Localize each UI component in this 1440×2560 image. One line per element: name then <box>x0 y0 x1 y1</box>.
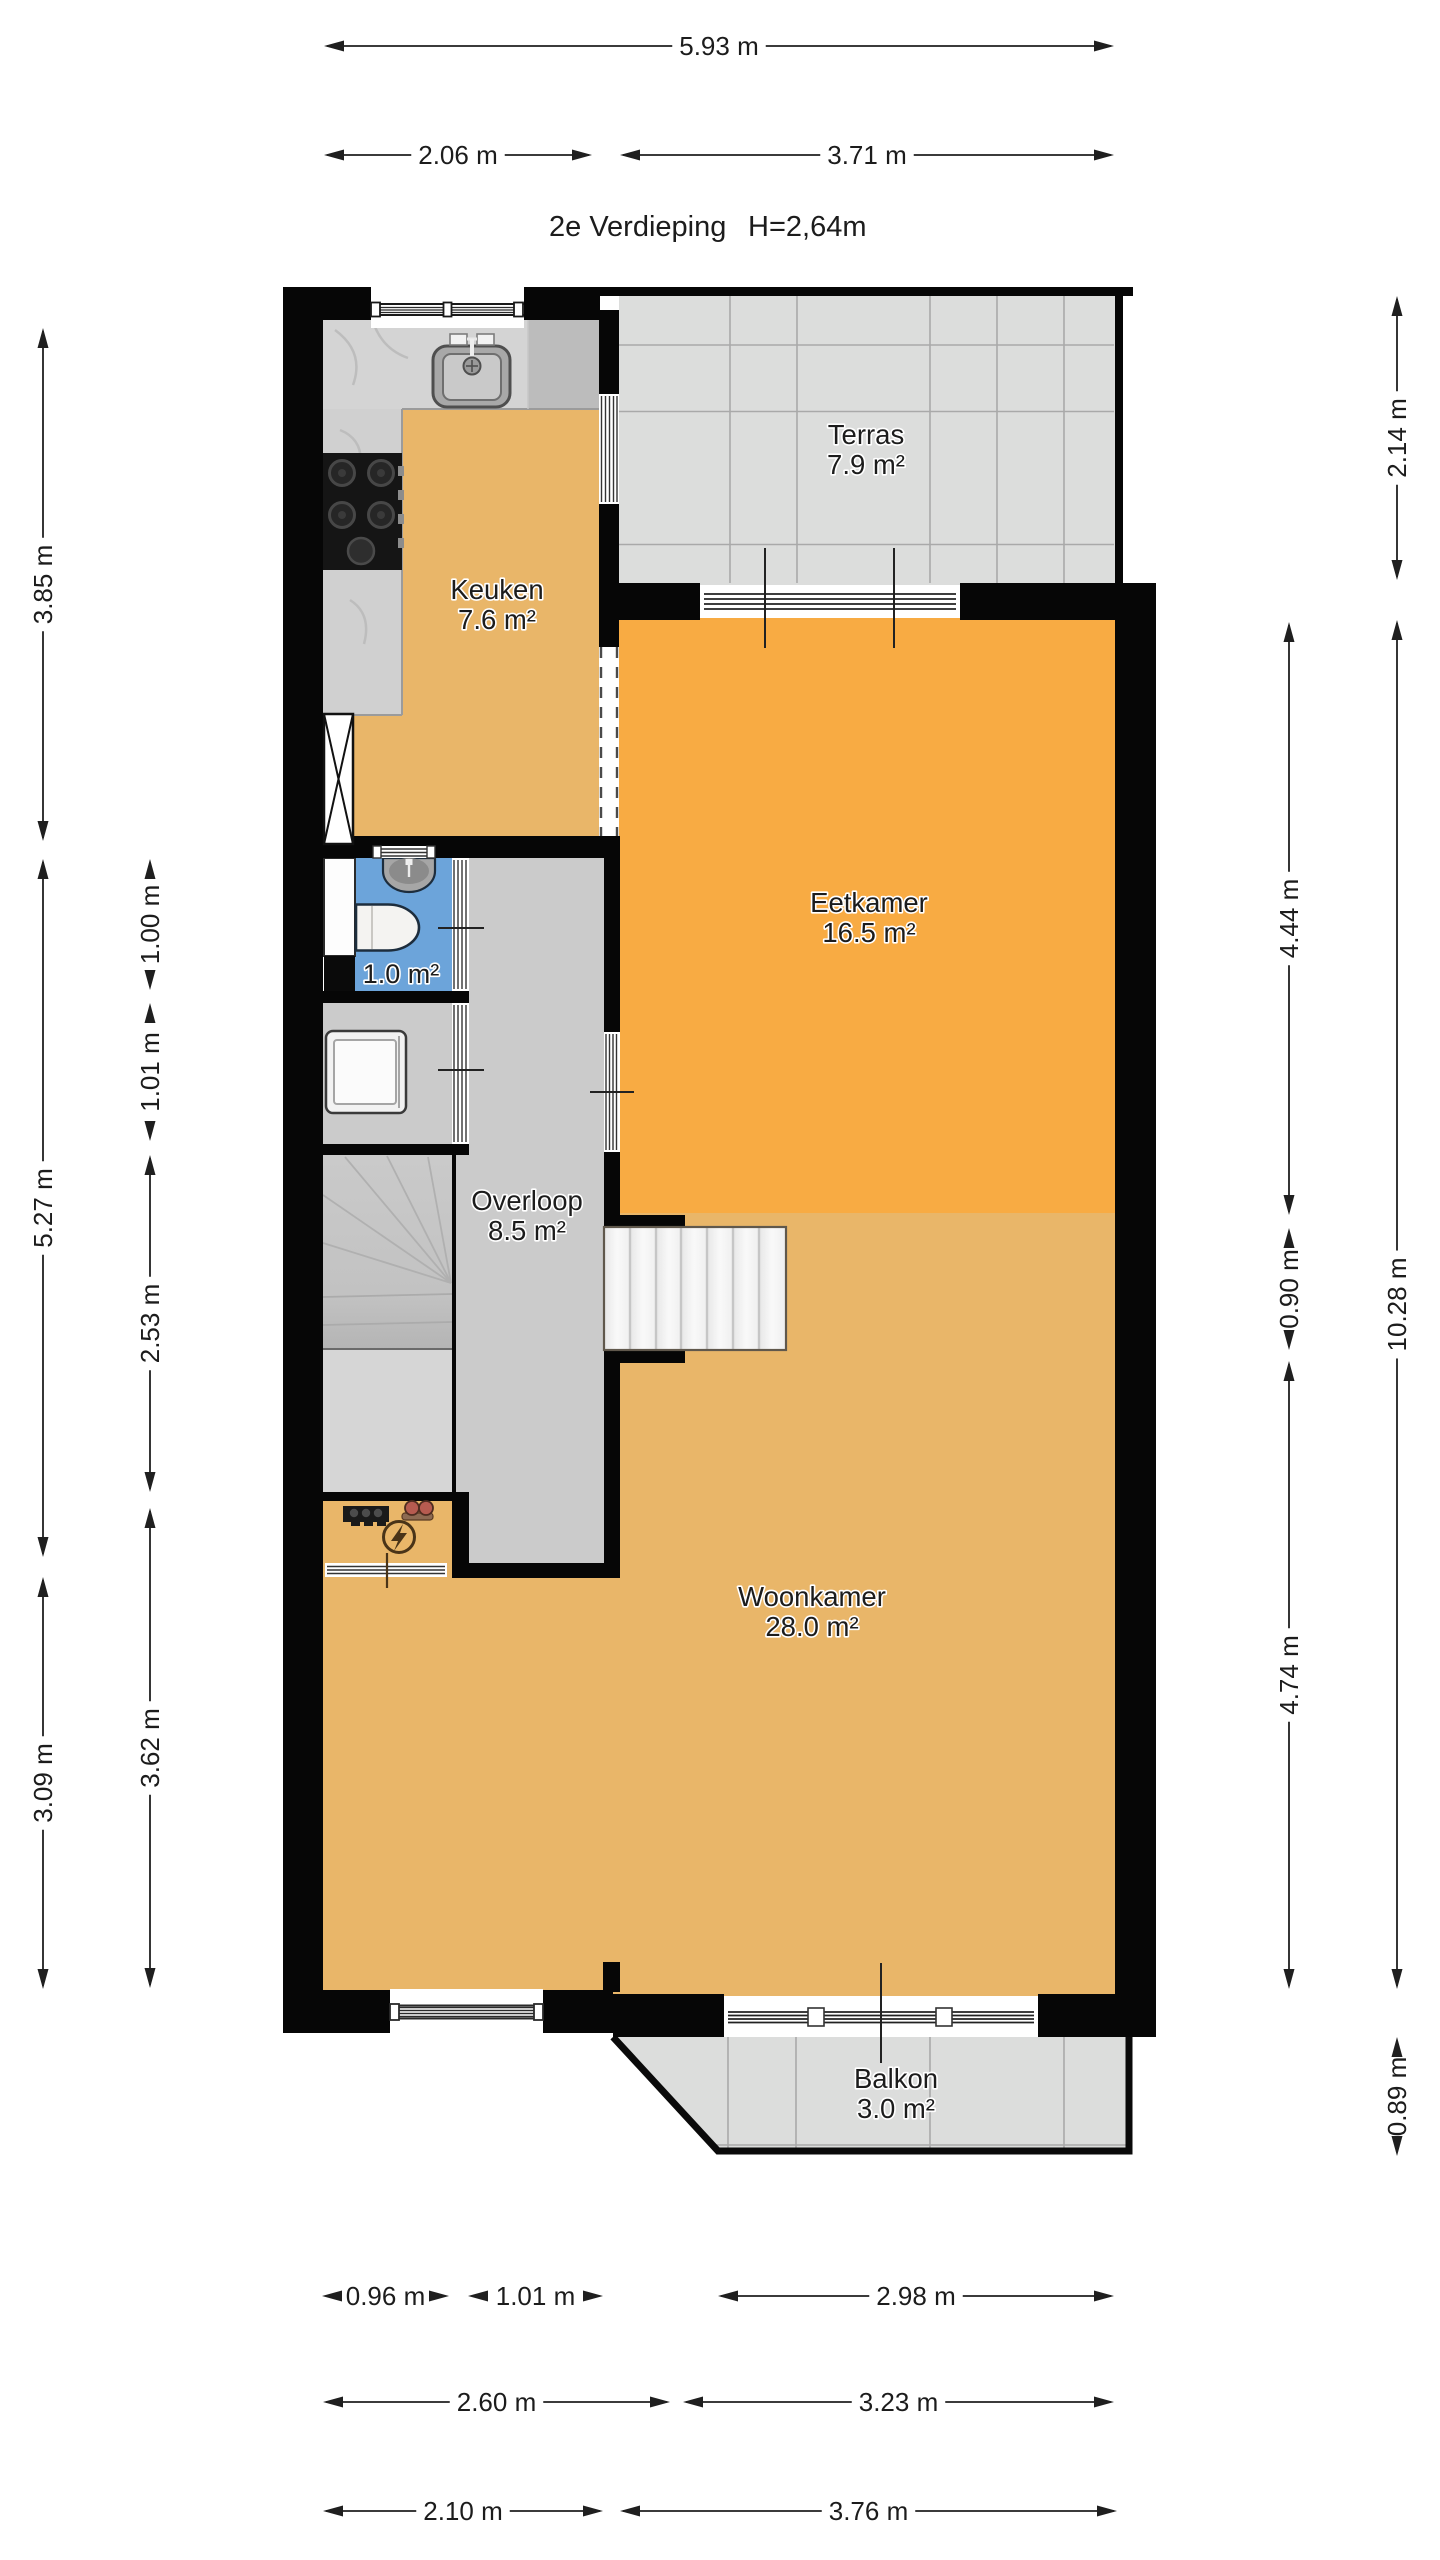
svg-text:7.6 m²: 7.6 m² <box>458 604 536 635</box>
svg-text:Eetkamer: Eetkamer <box>810 887 928 918</box>
svg-text:3.0 m²: 3.0 m² <box>857 2093 935 2124</box>
svg-text:5.93 m: 5.93 m <box>679 31 759 61</box>
svg-text:16.5 m²: 16.5 m² <box>822 917 915 948</box>
svg-text:8.5 m²: 8.5 m² <box>488 1215 566 1246</box>
svg-text:3.71 m: 3.71 m <box>827 140 907 170</box>
svg-text:4.44 m: 4.44 m <box>1274 879 1304 959</box>
svg-text:0.96 m: 0.96 m <box>346 2281 426 2311</box>
svg-text:2.06 m: 2.06 m <box>418 140 498 170</box>
svg-text:0.89 m: 0.89 m <box>1382 2057 1412 2137</box>
svg-text:3.09 m: 3.09 m <box>28 1743 58 1823</box>
svg-text:Keuken: Keuken <box>450 574 543 605</box>
svg-text:4.74 m: 4.74 m <box>1274 1635 1304 1715</box>
svg-text:1.01 m: 1.01 m <box>135 1032 165 1112</box>
svg-text:0.90 m: 0.90 m <box>1274 1249 1304 1329</box>
svg-text:Terras: Terras <box>828 419 904 450</box>
svg-text:H=2,64m: H=2,64m <box>748 211 866 243</box>
svg-text:1.00 m: 1.00 m <box>135 885 165 965</box>
svg-text:2e Verdieping: 2e Verdieping <box>549 211 726 243</box>
svg-text:1.01 m: 1.01 m <box>496 2281 576 2311</box>
svg-text:Overloop: Overloop <box>471 1185 583 1216</box>
svg-text:2.10 m: 2.10 m <box>423 2496 503 2526</box>
svg-text:5.27 m: 5.27 m <box>28 1168 58 1248</box>
svg-text:3.62 m: 3.62 m <box>135 1708 165 1788</box>
svg-text:2.14 m: 2.14 m <box>1382 398 1412 478</box>
svg-text:28.0 m²: 28.0 m² <box>765 1611 858 1642</box>
svg-text:2.98 m: 2.98 m <box>876 2281 956 2311</box>
svg-text:1.0 m²: 1.0 m² <box>363 959 440 989</box>
svg-text:3.76 m: 3.76 m <box>829 2496 909 2526</box>
svg-text:Balkon: Balkon <box>854 2063 938 2094</box>
svg-text:7.9 m²: 7.9 m² <box>827 449 905 480</box>
svg-text:3.23 m: 3.23 m <box>859 2387 939 2417</box>
svg-text:3.85 m: 3.85 m <box>28 545 58 625</box>
svg-text:2.53 m: 2.53 m <box>135 1284 165 1364</box>
svg-text:Woonkamer: Woonkamer <box>738 1581 886 1612</box>
svg-text:10.28 m: 10.28 m <box>1382 1258 1412 1352</box>
svg-text:2.60 m: 2.60 m <box>457 2387 537 2417</box>
